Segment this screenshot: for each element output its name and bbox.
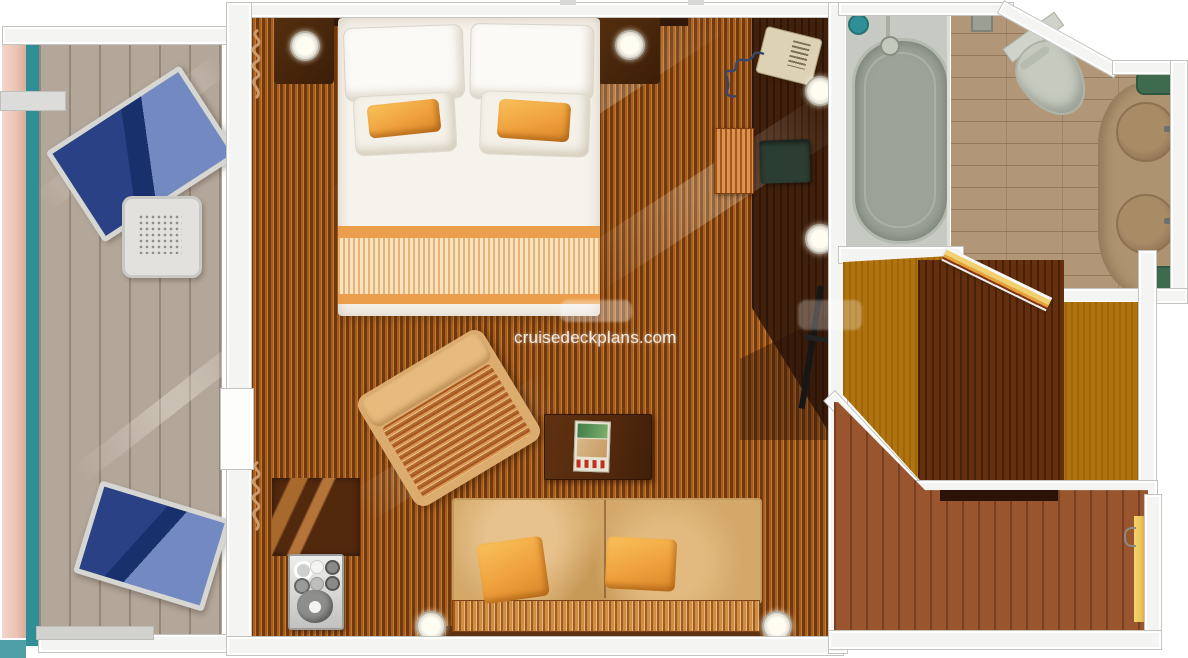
sofa-pillow bbox=[476, 536, 550, 605]
cup bbox=[325, 576, 340, 591]
wall-top-tab bbox=[560, 0, 576, 5]
glass bbox=[310, 577, 324, 591]
wall-bottom bbox=[226, 636, 844, 656]
minibar-cabinet-highlight bbox=[272, 478, 360, 556]
floorplan-canvas: cruisedeckplans.com bbox=[0, 0, 1188, 658]
lamp-nightstand-left bbox=[290, 31, 320, 61]
balcony-door bbox=[220, 388, 254, 470]
glass bbox=[310, 560, 324, 574]
shower-glass-panel bbox=[947, 12, 950, 248]
bed-runner-stripes bbox=[338, 238, 600, 294]
closet-wall-right bbox=[1138, 250, 1157, 498]
balcony-sea-corner bbox=[0, 640, 26, 658]
balcony-hull-strip bbox=[2, 28, 26, 638]
shower-head bbox=[880, 36, 900, 56]
tub-drain-cap bbox=[848, 14, 869, 35]
ice-bucket bbox=[297, 590, 333, 623]
bathroom-wall-right bbox=[1170, 60, 1188, 304]
entry-wall-bottom bbox=[828, 630, 1162, 650]
sink-basin bbox=[1116, 102, 1176, 162]
bed-runner-band bbox=[338, 226, 600, 238]
orange-throw-pillow bbox=[497, 99, 572, 143]
magazine bbox=[573, 420, 611, 472]
magazine-cover-art bbox=[577, 423, 607, 438]
bed-pillow bbox=[469, 23, 594, 101]
striped-ottoman bbox=[714, 128, 754, 194]
wall-top bbox=[228, 2, 844, 18]
watermark-smudge bbox=[560, 300, 632, 322]
entry-door-handle bbox=[1124, 527, 1136, 547]
balcony-sea-strip bbox=[26, 30, 39, 646]
side-table-perforation bbox=[138, 214, 182, 254]
desk-chair bbox=[759, 139, 810, 184]
entry-wall-right bbox=[1144, 494, 1162, 644]
sofa-front-stripe bbox=[452, 600, 760, 632]
drink-tray bbox=[288, 554, 344, 630]
balcony-top-rail bbox=[2, 26, 232, 45]
watermark-smudge bbox=[798, 300, 862, 330]
balcony-divider-top bbox=[0, 91, 66, 111]
telephone-cord bbox=[722, 48, 766, 100]
ice-bucket-knob bbox=[309, 601, 321, 613]
wall-left bbox=[226, 2, 252, 654]
lamp-nightstand-right bbox=[615, 30, 645, 60]
watermark: cruisedeckplans.com bbox=[514, 328, 677, 348]
entry-threshold-top bbox=[940, 490, 1058, 501]
sink-basin bbox=[1116, 194, 1176, 254]
wall-top-tab bbox=[688, 0, 704, 5]
bathroom-wall-top bbox=[838, 2, 1014, 16]
cup bbox=[325, 560, 340, 575]
sofa-pillow bbox=[605, 536, 678, 592]
bed-pillow bbox=[343, 24, 466, 102]
bathtub-inner-rim bbox=[864, 52, 936, 228]
balcony-divider-bottom bbox=[36, 626, 154, 640]
magazine-title-marks bbox=[576, 459, 606, 468]
magazine-cover-photo bbox=[577, 438, 608, 457]
